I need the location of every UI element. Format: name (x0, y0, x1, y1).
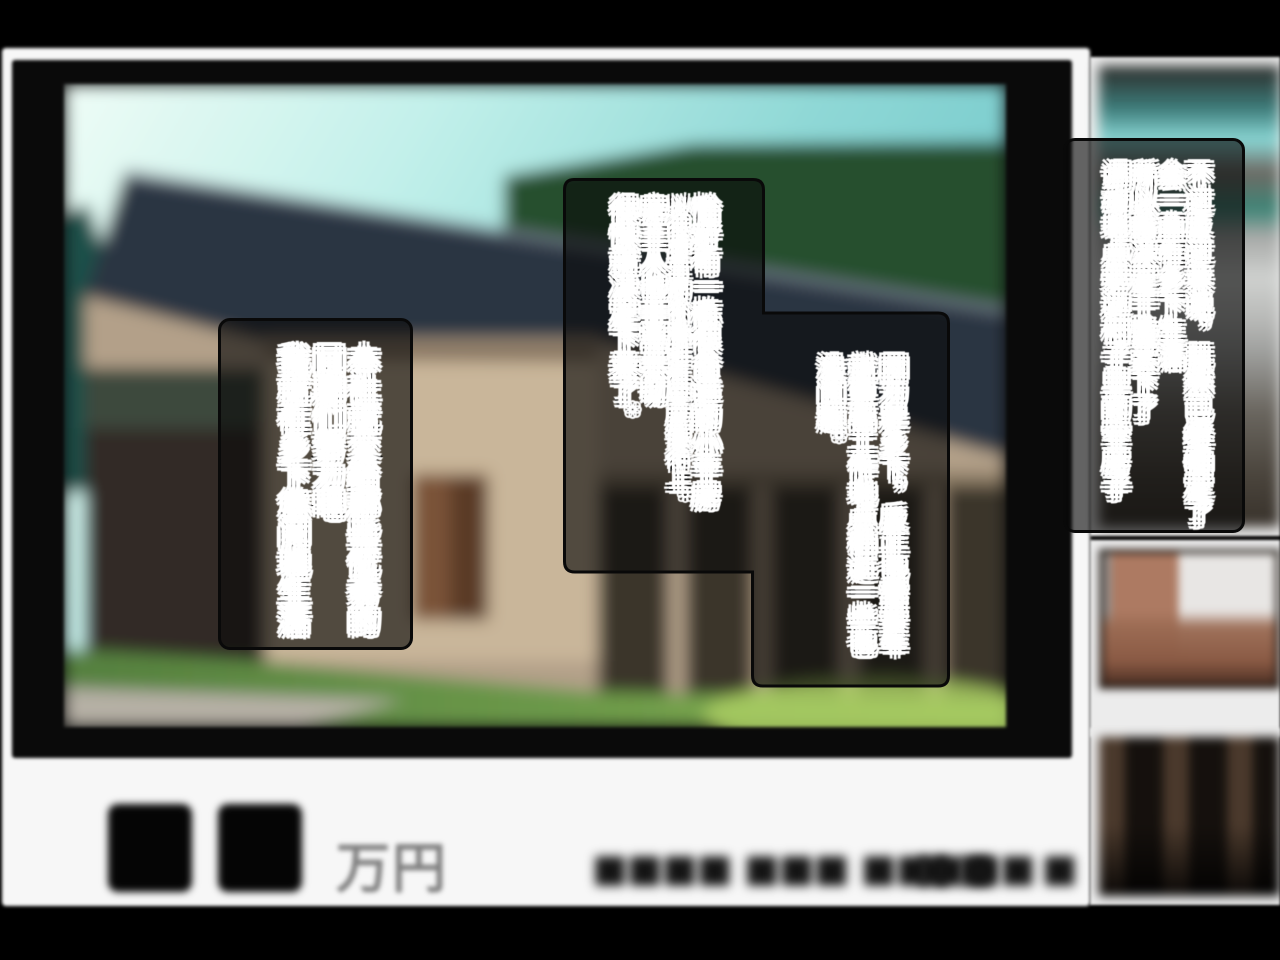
speech-line: 调动地点旁边村子里的空房子 (1101, 162, 1129, 530)
speech-text-right: 不过反过来说，既然已经确定了 会一直在乡下生活 所以我决定干脆买下了 调动地点旁… (1095, 162, 1211, 530)
speech-line: 以很便宜的价格挂在空房银行上。 (665, 196, 689, 536)
speech-line: 本社就交给那些优秀的 (344, 345, 379, 645)
price-unit-label: 万円 (336, 824, 448, 903)
sidebar-thumbnail-2 (1090, 540, 1280, 737)
sidebar-thumbnail-3-image (1099, 737, 1280, 896)
speech-text-center: 恰好有一栋很合适的小平房 以很便宜的价格挂在空房银行上。 房主人也非常亲切 很快… (598, 196, 718, 536)
page: 万円 ■■■■ ■■■ ■■■■ ■■■■ 恰好有一栋很合适的小平房 以很便宜的… (0, 0, 1280, 960)
speech-line: 恰好有一栋很合适的小平房 (689, 196, 718, 536)
speech-text-center-lower: 因为是乡下，反正也需要车 就算离工作地点稍远一些也 没问题。 (808, 355, 908, 677)
speech-line: 会一直在乡下生活 (1156, 162, 1184, 530)
censored-price-box-1 (108, 804, 192, 892)
speech-line: 同期们努力吧 (309, 345, 344, 645)
censored-price-box-2 (218, 804, 302, 892)
speech-line: 我就在乡下悠闲地生活 (275, 345, 310, 645)
speech-line: 房主人也非常亲切 (636, 196, 665, 536)
speech-line: 不过反过来说，既然已经确定了 (1184, 162, 1212, 530)
speech-line: 就算离工作地点稍远一些也 (846, 355, 877, 677)
sidebar-thumbnail-2-image (1099, 549, 1280, 689)
speech-line: 很快就决定下来了。 (607, 196, 636, 536)
speech-line: 没问题。 (814, 355, 845, 677)
speech-text-left: 本社就交给那些优秀的 同期们努力吧 我就在乡下悠闲地生活 (267, 345, 379, 645)
speech-line: 所以我决定干脆买下了 (1129, 162, 1157, 530)
speech-line: 因为是乡下，反正也需要车 (877, 355, 908, 677)
censored-caption-right: ■■■■ (916, 846, 1084, 890)
sidebar-thumbnail-3 (1090, 728, 1280, 905)
